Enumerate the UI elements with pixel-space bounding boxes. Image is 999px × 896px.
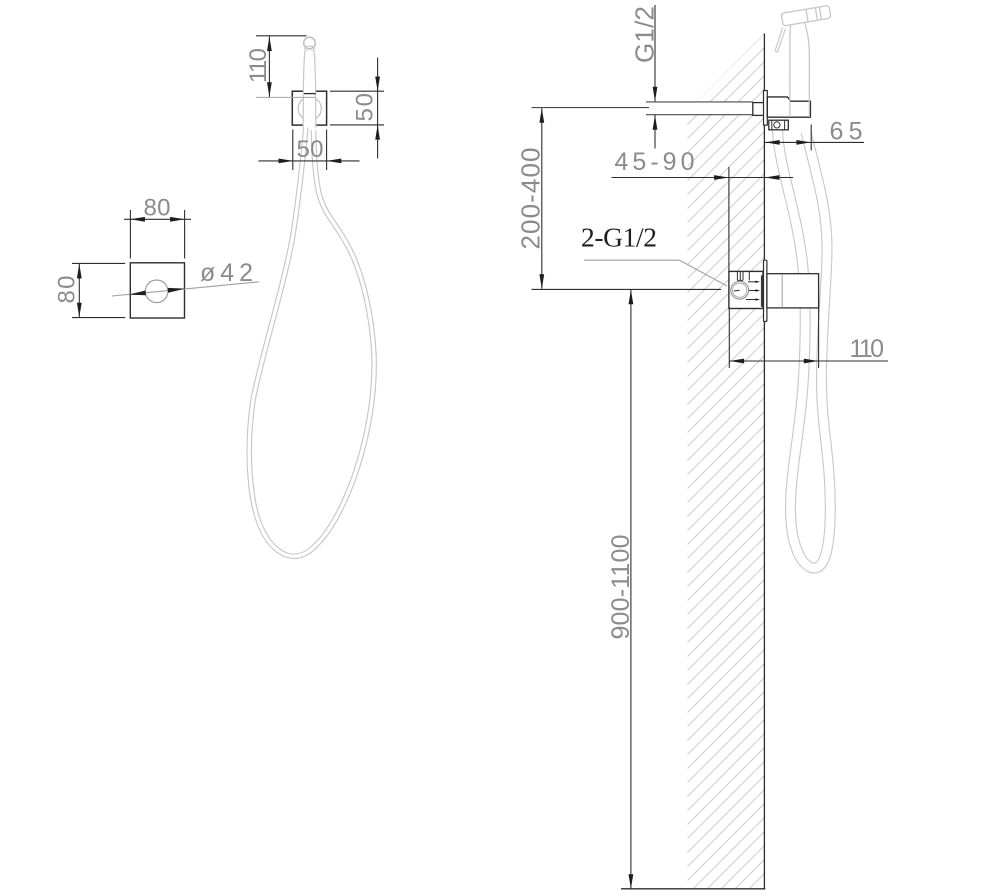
- svg-text:50: 50: [352, 93, 379, 122]
- svg-text:ø42: ø42: [200, 259, 253, 287]
- svg-text:50: 50: [297, 136, 324, 163]
- svg-text:110: 110: [245, 48, 272, 83]
- svg-text:2-G1/2: 2-G1/2: [581, 222, 657, 253]
- svg-text:80: 80: [54, 276, 81, 304]
- svg-text:G1/2: G1/2: [630, 6, 660, 63]
- svg-text:110: 110: [850, 335, 885, 363]
- svg-text:900-1100: 900-1100: [607, 535, 635, 640]
- svg-text:45-90: 45-90: [615, 148, 695, 176]
- svg-text:80: 80: [144, 195, 171, 222]
- svg-text:200-400: 200-400: [516, 148, 546, 250]
